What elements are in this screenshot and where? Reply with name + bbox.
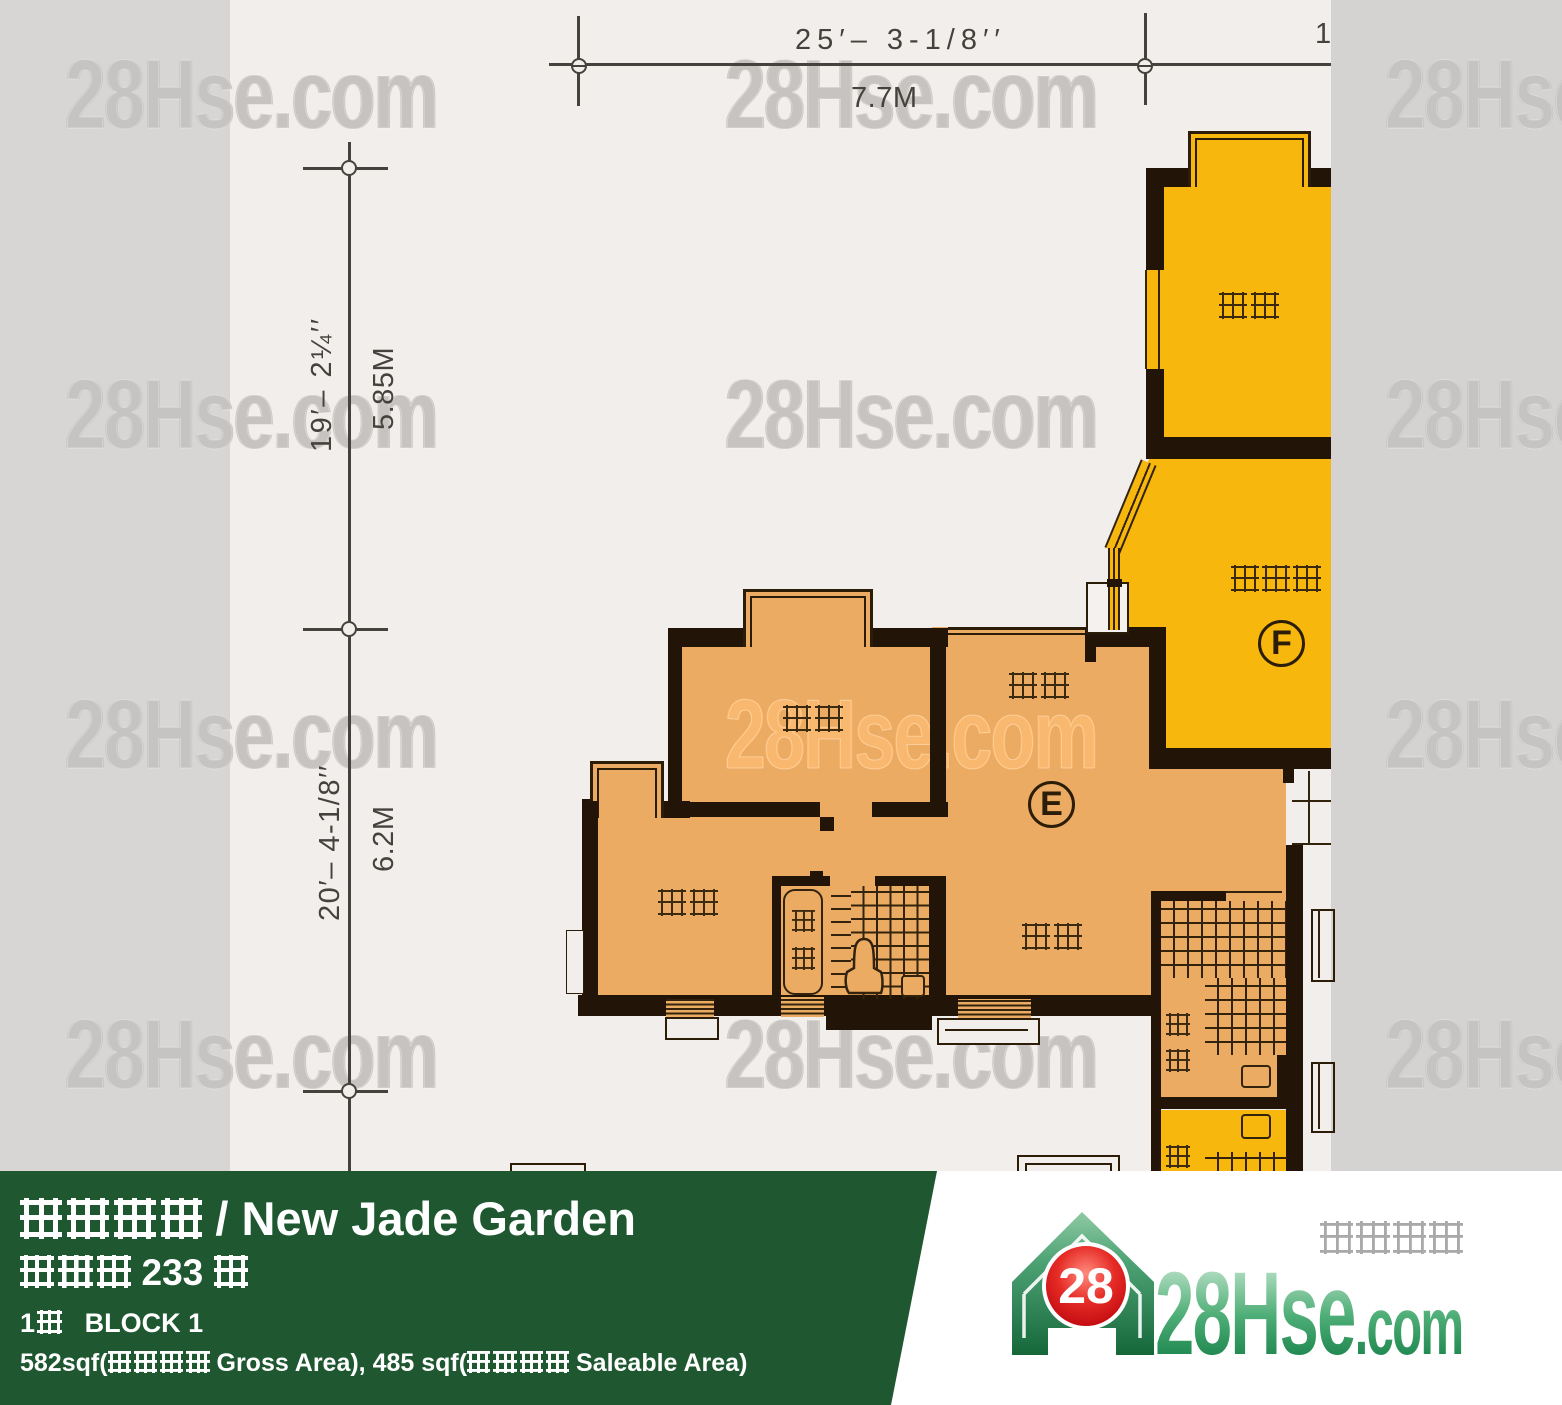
svg-text:28: 28	[1058, 1258, 1114, 1314]
